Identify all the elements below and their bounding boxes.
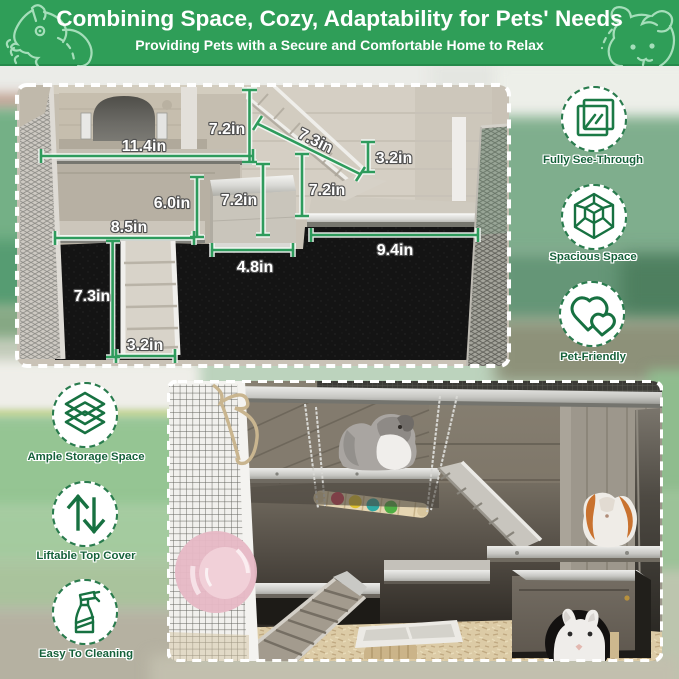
svg-text:3.2in: 3.2in [376,150,412,167]
svg-text:3.2in: 3.2in [127,337,163,354]
svg-text:4.8in: 4.8in [237,259,273,276]
svg-text:7.2in: 7.2in [221,192,257,209]
svg-text:7.2in: 7.2in [209,121,245,138]
svg-text:7.3in: 7.3in [74,288,110,305]
svg-text:9.4in: 9.4in [377,242,413,259]
svg-text:7.2in: 7.2in [309,182,345,199]
svg-text:11.4in: 11.4in [122,138,166,155]
svg-text:6.0in: 6.0in [154,195,190,212]
svg-text:8.5in: 8.5in [111,219,147,236]
